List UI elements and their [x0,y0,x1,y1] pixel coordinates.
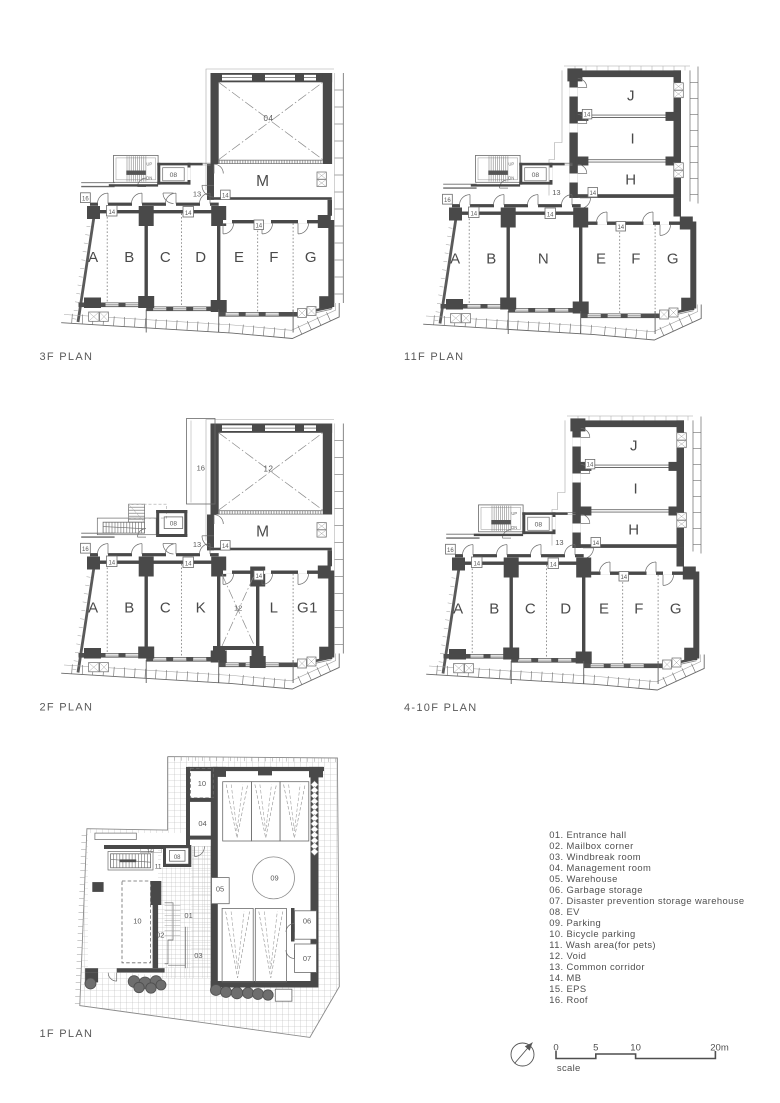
svg-text:09: 09 [270,874,278,883]
svg-text:DN: DN [146,176,152,181]
svg-text:M: M [256,173,269,190]
svg-text:14: 14 [222,193,229,199]
svg-text:04: 04 [198,819,206,828]
svg-text:A: A [453,601,464,618]
svg-text:16: 16 [82,547,89,553]
svg-text:01: 01 [184,911,192,920]
svg-text:G: G [670,601,682,618]
svg-text:14: 14 [587,463,594,469]
svg-text:14: 14 [620,575,627,581]
svg-text:12. Void: 12. Void [549,950,586,961]
svg-text:4-10F PLAN: 4-10F PLAN [404,702,478,714]
svg-text:14: 14 [255,223,262,229]
svg-text:D: D [195,249,206,266]
svg-text:A: A [88,249,99,266]
svg-text:10: 10 [198,779,206,788]
svg-text:10: 10 [133,917,141,926]
svg-text:E: E [234,249,245,266]
svg-text:J: J [630,438,638,455]
svg-text:14: 14 [592,541,599,547]
svg-text:B: B [486,251,497,268]
svg-text:UP: UP [508,162,514,167]
svg-text:07. Disaster prevention storag: 07. Disaster prevention storage warehous… [549,895,744,906]
svg-text:11: 11 [155,863,162,870]
svg-text:J: J [627,88,635,105]
svg-text:I: I [631,130,635,147]
svg-text:10: 10 [630,1043,641,1054]
svg-text:16: 16 [447,548,454,554]
svg-text:14: 14 [185,211,192,217]
svg-text:16. Roof: 16. Roof [549,994,588,1005]
svg-text:14: 14 [550,562,557,568]
svg-text:02. Mailbox corner: 02. Mailbox corner [549,840,633,851]
svg-text:C: C [160,249,171,266]
svg-text:C: C [160,600,171,617]
svg-text:14: 14 [547,212,554,218]
svg-text:DN: DN [508,176,514,181]
svg-text:14: 14 [470,211,477,217]
svg-text:M: M [256,523,269,540]
svg-text:14: 14 [222,544,229,550]
svg-text:04. Management room: 04. Management room [549,862,651,873]
svg-text:10: 10 [147,848,155,855]
svg-text:10. Bicycle parking: 10. Bicycle parking [549,928,635,939]
svg-text:07: 07 [303,954,311,963]
svg-text:B: B [489,601,500,618]
svg-text:E: E [599,601,610,618]
svg-text:0: 0 [553,1043,558,1054]
svg-text:16: 16 [197,464,205,473]
svg-text:14. MB: 14. MB [549,972,581,983]
svg-text:20m: 20m [710,1043,729,1054]
svg-text:06. Garbage storage: 06. Garbage storage [549,884,643,895]
svg-text:I: I [634,480,638,497]
svg-text:14: 14 [589,191,596,197]
svg-text:15. EPS: 15. EPS [549,983,586,994]
svg-text:13: 13 [555,538,563,547]
svg-text:08. EV: 08. EV [549,906,580,917]
svg-text:03. Windbreak room: 03. Windbreak room [549,851,641,862]
svg-text:F: F [634,601,644,618]
svg-text:05. Warehouse: 05. Warehouse [549,873,617,884]
svg-text:12: 12 [264,465,274,474]
svg-text:F: F [631,251,641,268]
svg-text:A: A [88,600,99,617]
svg-text:14: 14 [185,561,192,567]
svg-text:16: 16 [82,196,89,202]
svg-text:08: 08 [174,855,181,861]
svg-text:14: 14 [255,574,262,580]
svg-text:14: 14 [617,225,624,231]
svg-text:13: 13 [552,188,560,197]
svg-text:H: H [628,521,639,538]
svg-text:B: B [124,249,135,266]
svg-text:1F PLAN: 1F PLAN [40,1028,94,1040]
svg-text:B: B [124,600,135,617]
svg-text:08: 08 [170,521,178,528]
svg-text:DN: DN [511,525,517,530]
svg-text:13. Common corridor: 13. Common corridor [549,961,645,972]
svg-text:UP: UP [146,162,152,167]
svg-text:05: 05 [216,885,224,894]
svg-text:01. Entrance hall: 01. Entrance hall [549,829,626,840]
svg-text:UP: UP [511,511,517,516]
svg-text:14: 14 [584,113,591,119]
svg-text:2F PLAN: 2F PLAN [40,702,94,714]
svg-text:08: 08 [532,172,540,179]
svg-text:02: 02 [156,930,164,939]
svg-text:G: G [667,251,679,268]
svg-text:16: 16 [444,198,451,204]
svg-text:H: H [625,171,636,188]
svg-text:L: L [270,600,279,617]
svg-text:G1: G1 [297,600,318,617]
svg-text:3F PLAN: 3F PLAN [40,351,94,363]
svg-text:04: 04 [264,114,274,123]
svg-text:G: G [305,249,317,266]
svg-text:K: K [196,600,207,617]
svg-text:11F PLAN: 11F PLAN [404,351,464,363]
svg-text:D: D [560,601,571,618]
svg-text:11. Wash area(for pets): 11. Wash area(for pets) [549,939,656,950]
svg-text:06: 06 [303,916,311,925]
svg-text:13: 13 [193,540,201,549]
svg-text:E: E [596,251,607,268]
svg-text:12: 12 [234,604,242,613]
svg-text:F: F [269,249,279,266]
svg-text:A: A [450,251,461,268]
svg-text:08: 08 [535,522,543,529]
svg-text:C: C [525,601,536,618]
svg-text:5: 5 [593,1043,598,1054]
svg-text:14: 14 [473,561,480,567]
svg-text:14: 14 [108,210,115,216]
svg-text:14: 14 [108,560,115,566]
svg-text:09. Parking: 09. Parking [549,917,601,928]
svg-text:13: 13 [193,190,201,199]
svg-text:03: 03 [194,951,202,960]
svg-text:08: 08 [170,172,178,179]
svg-text:N: N [538,251,549,268]
svg-text:scale: scale [557,1063,581,1074]
